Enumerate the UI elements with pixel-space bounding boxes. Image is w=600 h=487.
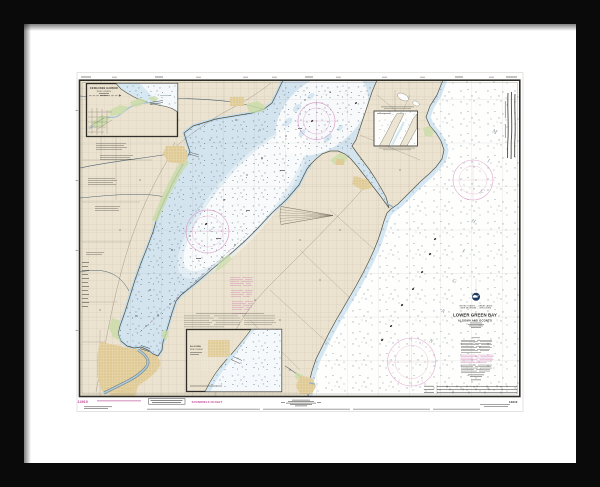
svg-text:KEWAUNEE HARBOR: KEWAUNEE HARBOR (90, 87, 118, 90)
svg-text:ALGOMA AND OCONTO: ALGOMA AND OCONTO (458, 318, 492, 322)
svg-text:WISCONSIN: WISCONSIN (190, 349, 203, 351)
svg-text:14910: 14910 (78, 400, 89, 404)
svg-text:LAKE MICHIGAN — WISCONSIN: LAKE MICHIGAN — WISCONSIN (460, 307, 492, 310)
svg-text:LOWER GREEN BAY: LOWER GREEN BAY (453, 312, 497, 317)
svg-text:ALGOMA: ALGOMA (190, 345, 201, 348)
svg-text:14910: 14910 (509, 400, 518, 404)
svg-text:SOUNDINGS IN FEET: SOUNDINGS IN FEET (192, 400, 223, 404)
svg-text:WISCONSIN: WISCONSIN (97, 91, 112, 93)
